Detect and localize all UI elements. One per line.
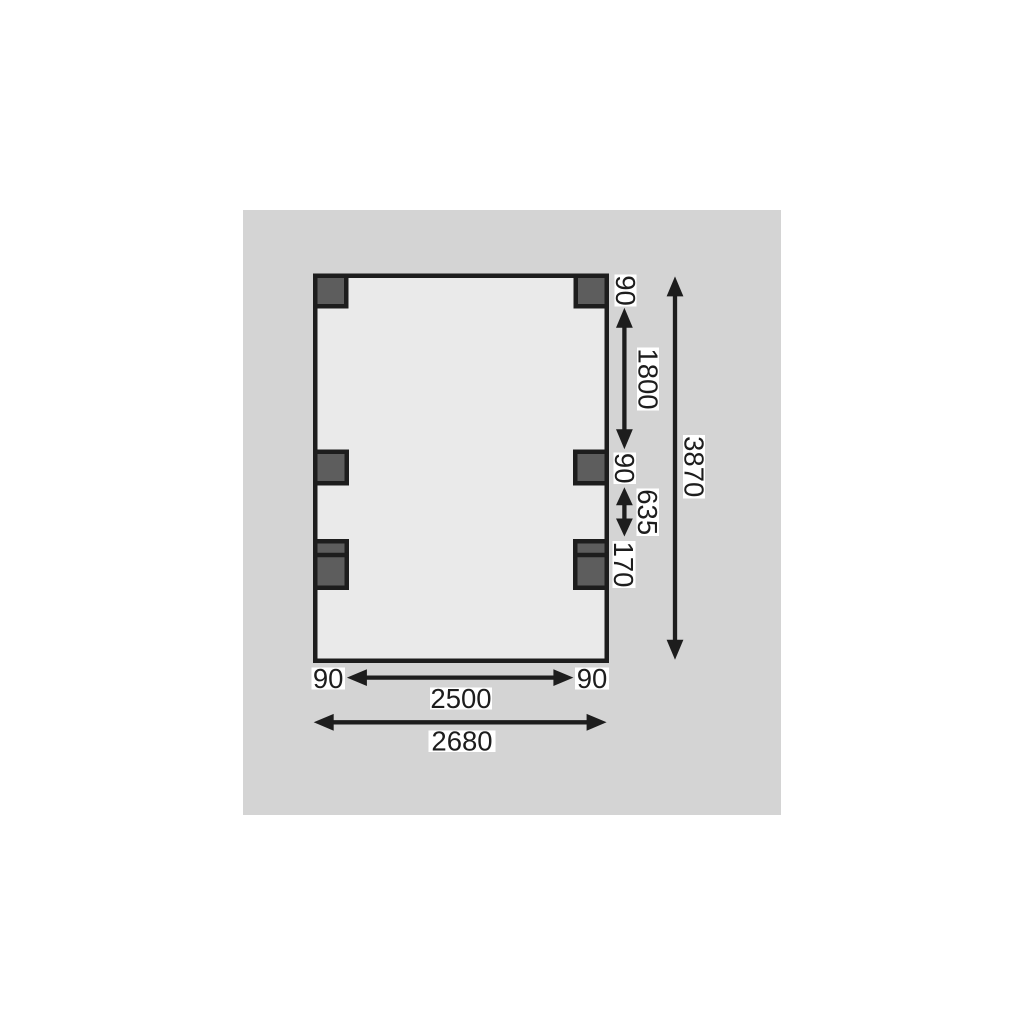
svg-text:170: 170 <box>608 542 639 588</box>
svg-text:2680: 2680 <box>431 726 492 757</box>
svg-text:90: 90 <box>610 275 641 306</box>
svg-text:2500: 2500 <box>430 683 491 714</box>
svg-text:90: 90 <box>313 663 344 694</box>
svg-text:1800: 1800 <box>633 348 664 409</box>
svg-text:3870: 3870 <box>679 436 710 497</box>
svg-text:635: 635 <box>632 489 663 535</box>
svg-text:90: 90 <box>609 453 640 484</box>
svg-text:90: 90 <box>577 663 608 694</box>
